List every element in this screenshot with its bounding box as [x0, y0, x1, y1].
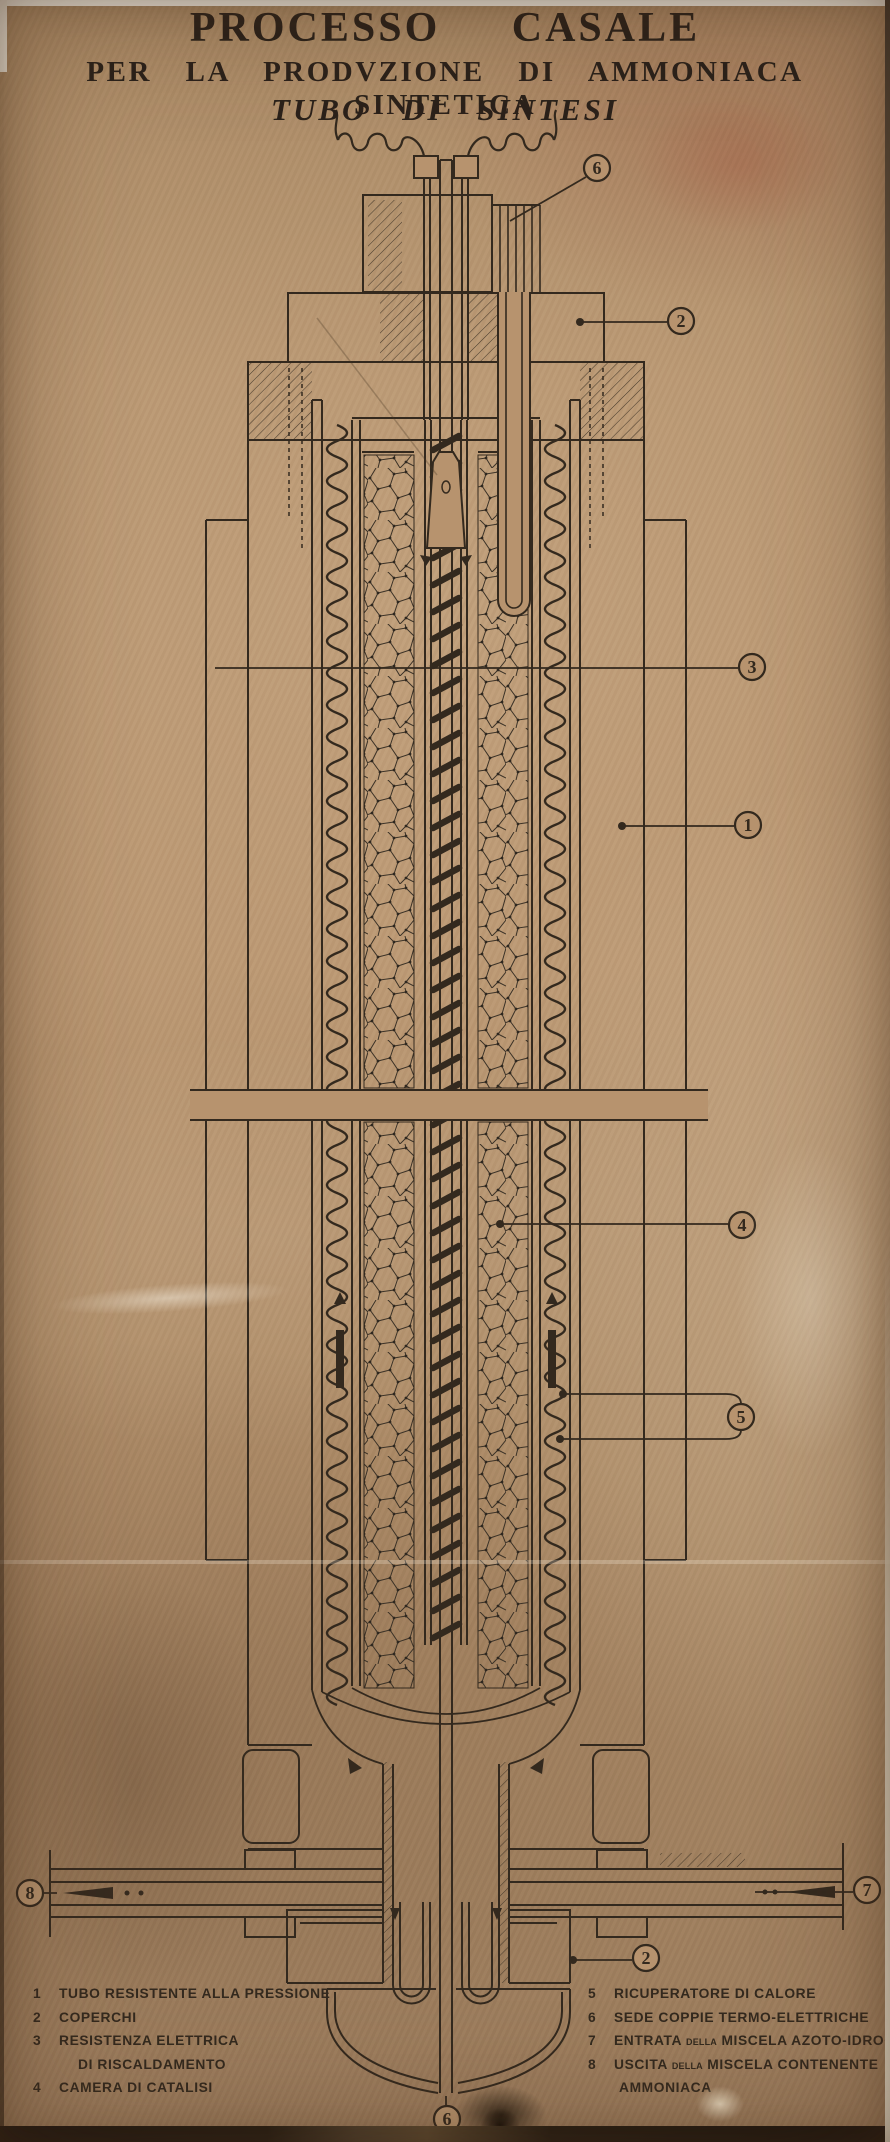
heating-coil [433, 436, 459, 1638]
legend-item-7: 7ENTRATA DELLA MISCELA AZOTO-IDROGENO [588, 2033, 890, 2057]
callout-bottom_thermo-number: 6 [443, 2109, 452, 2129]
legend-item-3-cont: DI RISCALDAMENTO [33, 2057, 330, 2081]
legend-left: 1TUBO RESISTENTE ALLA PRESSIONE 2COPERCH… [33, 1986, 330, 2104]
callout-outlet: 8 [17, 1880, 43, 1906]
legend-item-3: 3RESISTENZA ELETTRICA [33, 2033, 330, 2057]
synthesis-tube-diagram: 6231452786 [0, 0, 890, 2142]
callout-top_thermo-number: 6 [593, 158, 602, 178]
catalyst-pattern [364, 455, 528, 1688]
callout-catalyst_chamber: 4 [729, 1212, 755, 1238]
legend-item-2: 2COPERCHI [33, 2010, 330, 2034]
callout-top_cover: 2 [668, 308, 694, 334]
callout-inlet-number: 7 [863, 1880, 872, 1900]
drawing-title: TUBO DI SINTESI [0, 92, 890, 128]
callout-inlet: 7 [854, 1877, 880, 1903]
legend-item-8-cont: AMMONIACA [588, 2080, 890, 2104]
callout-resistance: 3 [739, 654, 765, 680]
callout-bottom_thermo: 6 [434, 2106, 460, 2132]
callout-top_cover-number: 2 [677, 311, 686, 331]
break-band [190, 1091, 708, 1119]
callout-pressure_tube: 1 [735, 812, 761, 838]
legend-item-8: 8USCITA DELLA MISCELA CONTENENTE [588, 2057, 890, 2081]
callout-heat_recovery-number: 5 [737, 1407, 746, 1427]
callout-bottom_cover: 2 [633, 1945, 659, 1971]
callout-bottom_cover-number: 2 [642, 1948, 651, 1968]
callout-resistance-number: 3 [748, 657, 757, 677]
callout-outlet-number: 8 [26, 1883, 35, 1903]
callout-pressure_tube-number: 1 [744, 815, 753, 835]
legend-item-4: 4CAMERA DI CATALISI [33, 2080, 330, 2104]
callout-catalyst_chamber-number: 4 [738, 1215, 747, 1235]
poster-title: PROCESSO CASALE [0, 4, 890, 52]
legend-right: 5RICUPERATORE DI CALORE 6SEDE COPPIE TER… [588, 1986, 890, 2104]
diagram-linework: 6231452786 [17, 110, 880, 2132]
callout-top_thermo: 6 [584, 155, 610, 181]
flow-arrows [63, 555, 835, 1920]
callout-heat_recovery: 5 [728, 1404, 754, 1430]
legend-item-1: 1TUBO RESISTENTE ALLA PRESSIONE [33, 1986, 330, 2010]
poster: PROCESSO CASALE PER LA PRODVZIONE DI AMM… [0, 0, 890, 2142]
legend-item-6: 6SEDE COPPIE TERMO-ELETTRICHE [588, 2010, 890, 2034]
legend-item-5: 5RICUPERATORE DI CALORE [588, 1986, 890, 2010]
